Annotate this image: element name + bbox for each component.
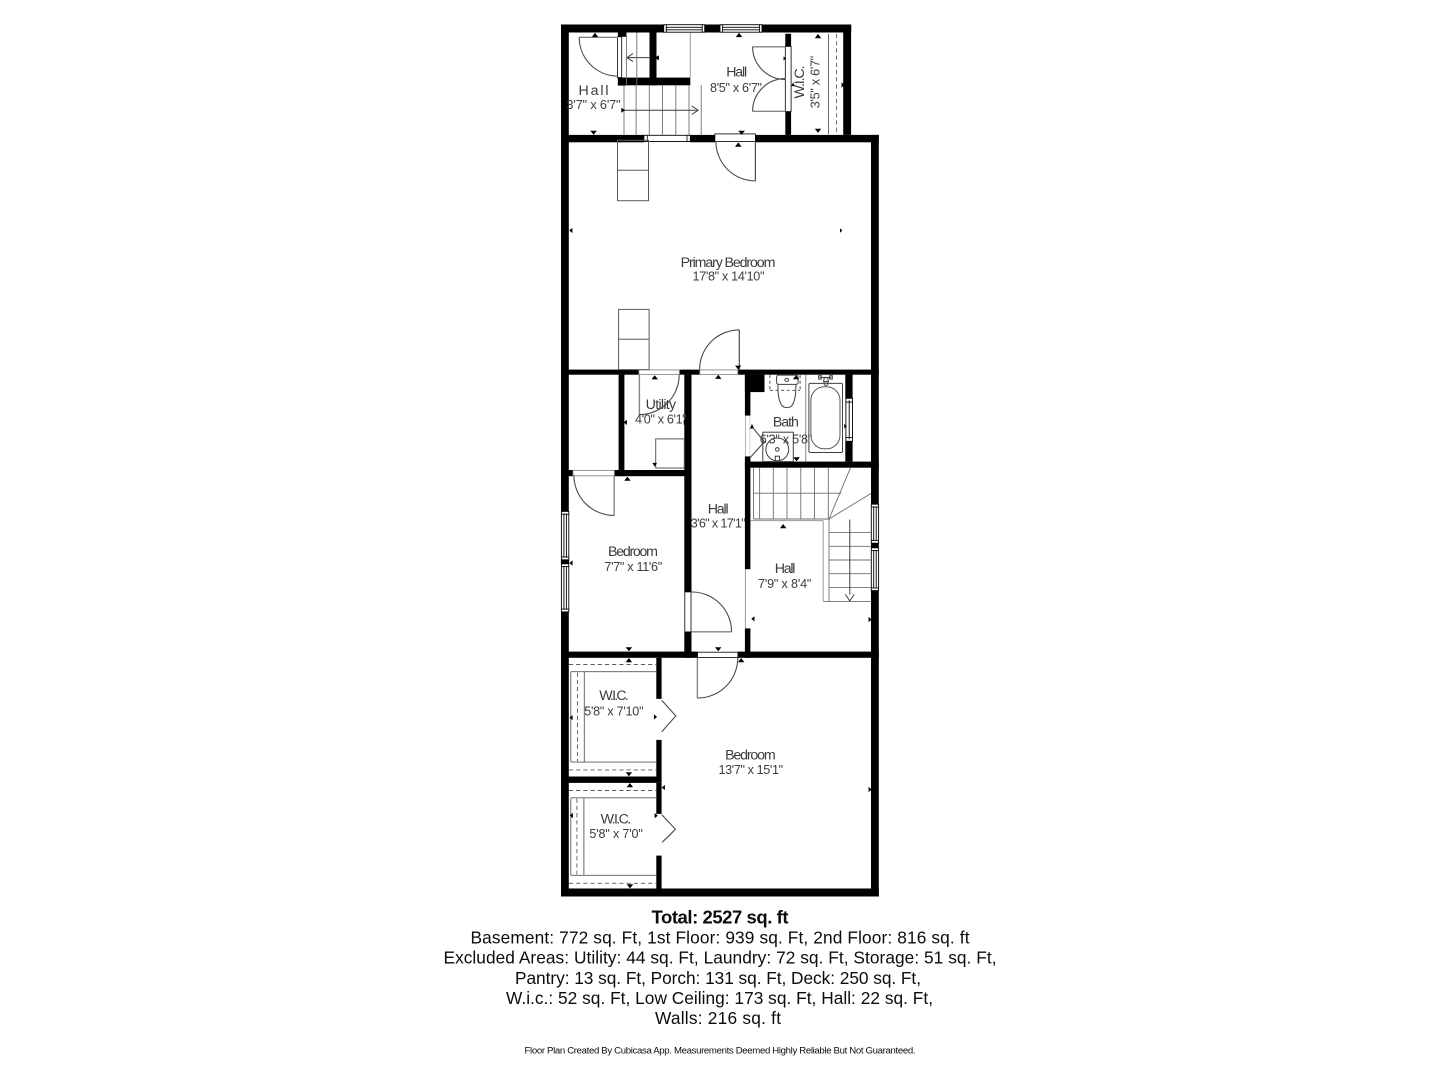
- svg-text:Hall: Hall: [708, 502, 729, 518]
- svg-text:Excluded Areas: Utility: 44 sq: Excluded Areas: Utility: 44 sq. Ft, Laun…: [444, 948, 997, 968]
- svg-text:Utility: Utility: [646, 397, 677, 413]
- svg-text:17'8" x 14'10": 17'8" x 14'10": [693, 270, 765, 284]
- svg-text:Floor Plan Created By Cubicasa: Floor Plan Created By Cubicasa App. Meas…: [525, 1045, 916, 1056]
- svg-text:Pantry: 13 sq. Ft, Porch: 131: Pantry: 13 sq. Ft, Porch: 131 sq. Ft, De…: [515, 968, 921, 988]
- svg-text:Hall: Hall: [775, 561, 796, 577]
- svg-text:5'8" x 7'10": 5'8" x 7'10": [584, 705, 643, 719]
- svg-text:3'6" x 17'1": 3'6" x 17'1": [691, 517, 746, 531]
- svg-text:7'9" x 8'4": 7'9" x 8'4": [758, 577, 811, 591]
- svg-text:Total: 2527 sq. ft: Total: 2527 sq. ft: [652, 906, 789, 927]
- svg-text:3'7" x 6'7": 3'7" x 6'7": [567, 98, 621, 112]
- svg-text:Bedroom: Bedroom: [608, 544, 658, 560]
- svg-text:Hall: Hall: [579, 83, 609, 99]
- svg-text:4'0" x 6'1": 4'0" x 6'1": [635, 412, 687, 426]
- svg-text:Walls: 216 sq. ft: Walls: 216 sq. ft: [655, 1008, 781, 1028]
- svg-text:13'7" x 15'1": 13'7" x 15'1": [719, 763, 784, 777]
- svg-text:Bath: Bath: [773, 415, 799, 431]
- svg-text:W.I.C.: W.I.C.: [599, 688, 629, 704]
- svg-text:Bedroom: Bedroom: [725, 747, 776, 763]
- svg-text:Basement: 772 sq. Ft, 1st Floo: Basement: 772 sq. Ft, 1st Floor: 939 sq.…: [471, 928, 970, 948]
- svg-text:5'8" x 7'0": 5'8" x 7'0": [589, 827, 642, 841]
- svg-text:3'5" x 6'7": 3'5" x 6'7": [809, 56, 823, 109]
- svg-text:W.i.c.: 52 sq. Ft, Low Ceiling: W.i.c.: 52 sq. Ft, Low Ceiling: 173 sq. …: [506, 988, 933, 1008]
- svg-text:6'3" x 5'8": 6'3" x 5'8": [760, 433, 812, 447]
- svg-text:7'7" x 11'6": 7'7" x 11'6": [604, 560, 662, 574]
- svg-text:W.I.C.: W.I.C.: [601, 811, 632, 827]
- svg-text:Hall: Hall: [726, 64, 747, 80]
- svg-text:8'5" x 6'7": 8'5" x 6'7": [710, 81, 762, 95]
- svg-text:W.I.C.: W.I.C.: [792, 66, 808, 99]
